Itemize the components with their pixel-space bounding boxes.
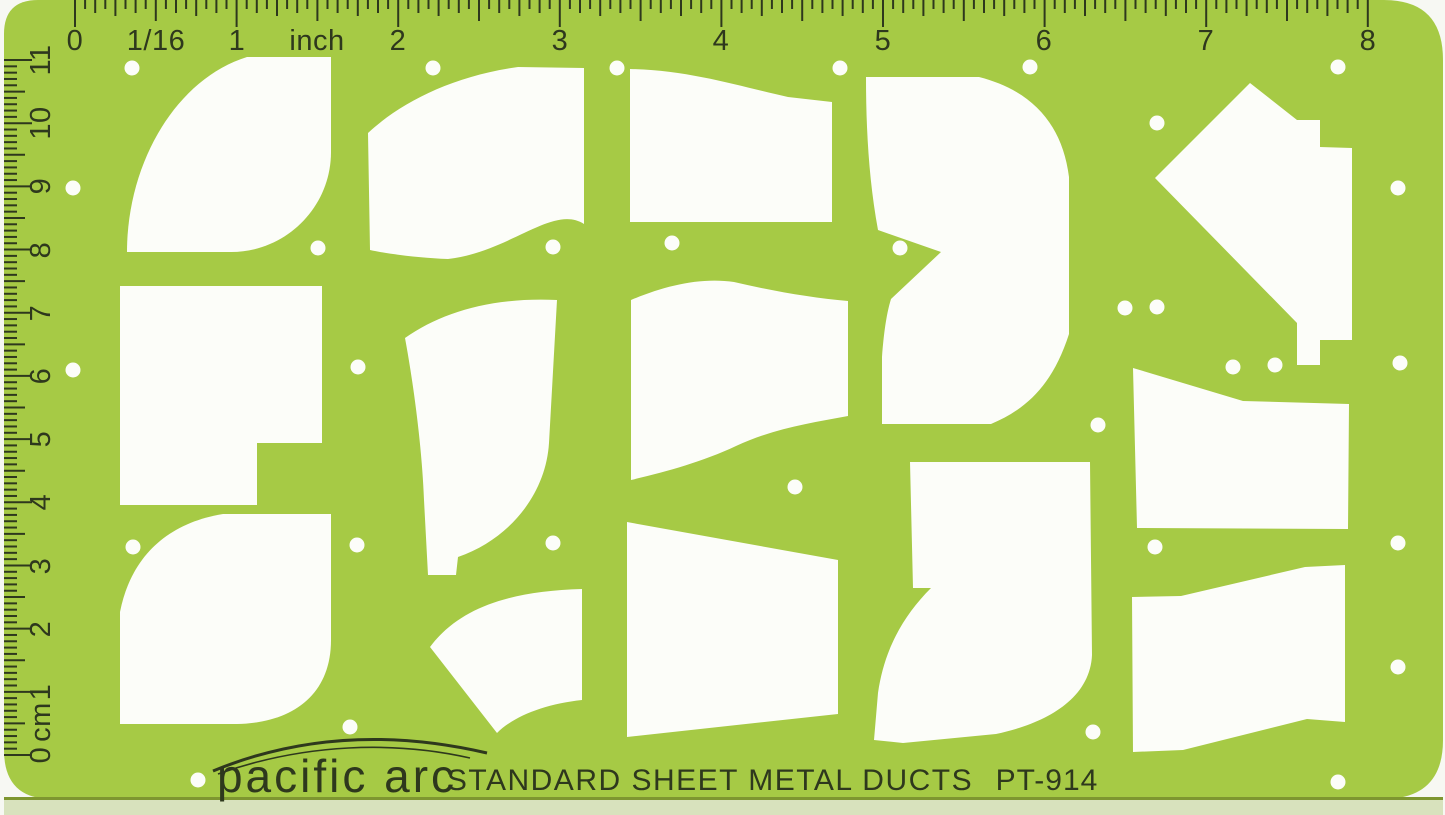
registration-hole	[426, 61, 441, 76]
left-ruler-label: 2	[25, 621, 57, 638]
left-ruler-label: cm	[25, 702, 57, 742]
registration-hole	[351, 360, 366, 375]
registration-hole	[610, 61, 625, 76]
top-ruler-label: 1/16	[127, 25, 185, 57]
top-ruler-label: 5	[875, 25, 892, 57]
top-ruler-label: 7	[1198, 25, 1215, 57]
registration-hole	[66, 363, 81, 378]
registration-hole	[1226, 360, 1241, 375]
registration-hole	[1023, 60, 1038, 75]
registration-hole	[1393, 356, 1408, 371]
registration-hole	[788, 480, 803, 495]
registration-hole	[1148, 540, 1163, 555]
registration-hole	[350, 538, 365, 553]
left-ruler-label: 11	[25, 44, 57, 75]
registration-hole	[665, 236, 680, 251]
top-ruler-label: 6	[1036, 25, 1053, 57]
product-photo-stencil: 01/161inch2345678 1110987654321cm0 pacif…	[0, 0, 1445, 815]
registration-hole	[1150, 300, 1165, 315]
left-ruler-label: 6	[25, 368, 57, 385]
registration-hole	[1391, 660, 1406, 675]
registration-hole	[191, 773, 206, 788]
top-ruler-label: 1	[229, 25, 246, 57]
registration-hole	[546, 536, 561, 551]
top-ruler-label: 2	[390, 25, 407, 57]
registration-hole	[1391, 536, 1406, 551]
registration-hole	[1118, 301, 1133, 316]
registration-hole	[1268, 358, 1283, 373]
left-ruler-label: 9	[25, 178, 57, 195]
top-ruler-label: 8	[1360, 25, 1377, 57]
registration-hole	[1091, 418, 1106, 433]
stencil-graphic: 01/161inch2345678 1110987654321cm0 pacif…	[0, 0, 1445, 815]
registration-hole	[343, 720, 358, 735]
product-title-text: STANDARD SHEET METAL DUCTS	[447, 764, 973, 797]
left-ruler-label: 3	[25, 558, 57, 575]
left-ruler-label: 8	[25, 242, 57, 259]
top-ruler-label: 0	[67, 25, 84, 57]
registration-hole	[1331, 775, 1346, 790]
registration-hole	[893, 241, 908, 256]
registration-hole	[1086, 725, 1101, 740]
left-ruler-label: 5	[25, 431, 57, 448]
registration-hole	[833, 61, 848, 76]
registration-hole	[311, 241, 326, 256]
registration-hole	[546, 240, 561, 255]
registration-hole	[1331, 60, 1346, 75]
registration-hole	[126, 540, 141, 555]
left-ruler-label: 1	[25, 684, 57, 701]
top-ruler-label: 3	[552, 25, 569, 57]
left-ruler-label: 4	[25, 494, 57, 511]
model-number-text: PT-914	[996, 764, 1099, 797]
registration-hole	[125, 61, 140, 76]
top-ruler-label: 4	[713, 25, 730, 57]
registration-hole	[1391, 181, 1406, 196]
left-ruler-label: 10	[25, 106, 57, 139]
brand-logo-text: pacific arc	[217, 750, 457, 802]
top-ruler-label: inch	[289, 25, 344, 57]
left-ruler-label: 0	[25, 747, 57, 764]
registration-hole	[1150, 116, 1165, 131]
registration-hole	[66, 181, 81, 196]
bottom-edge-strip	[4, 800, 1443, 815]
left-ruler-label: 7	[25, 305, 57, 322]
